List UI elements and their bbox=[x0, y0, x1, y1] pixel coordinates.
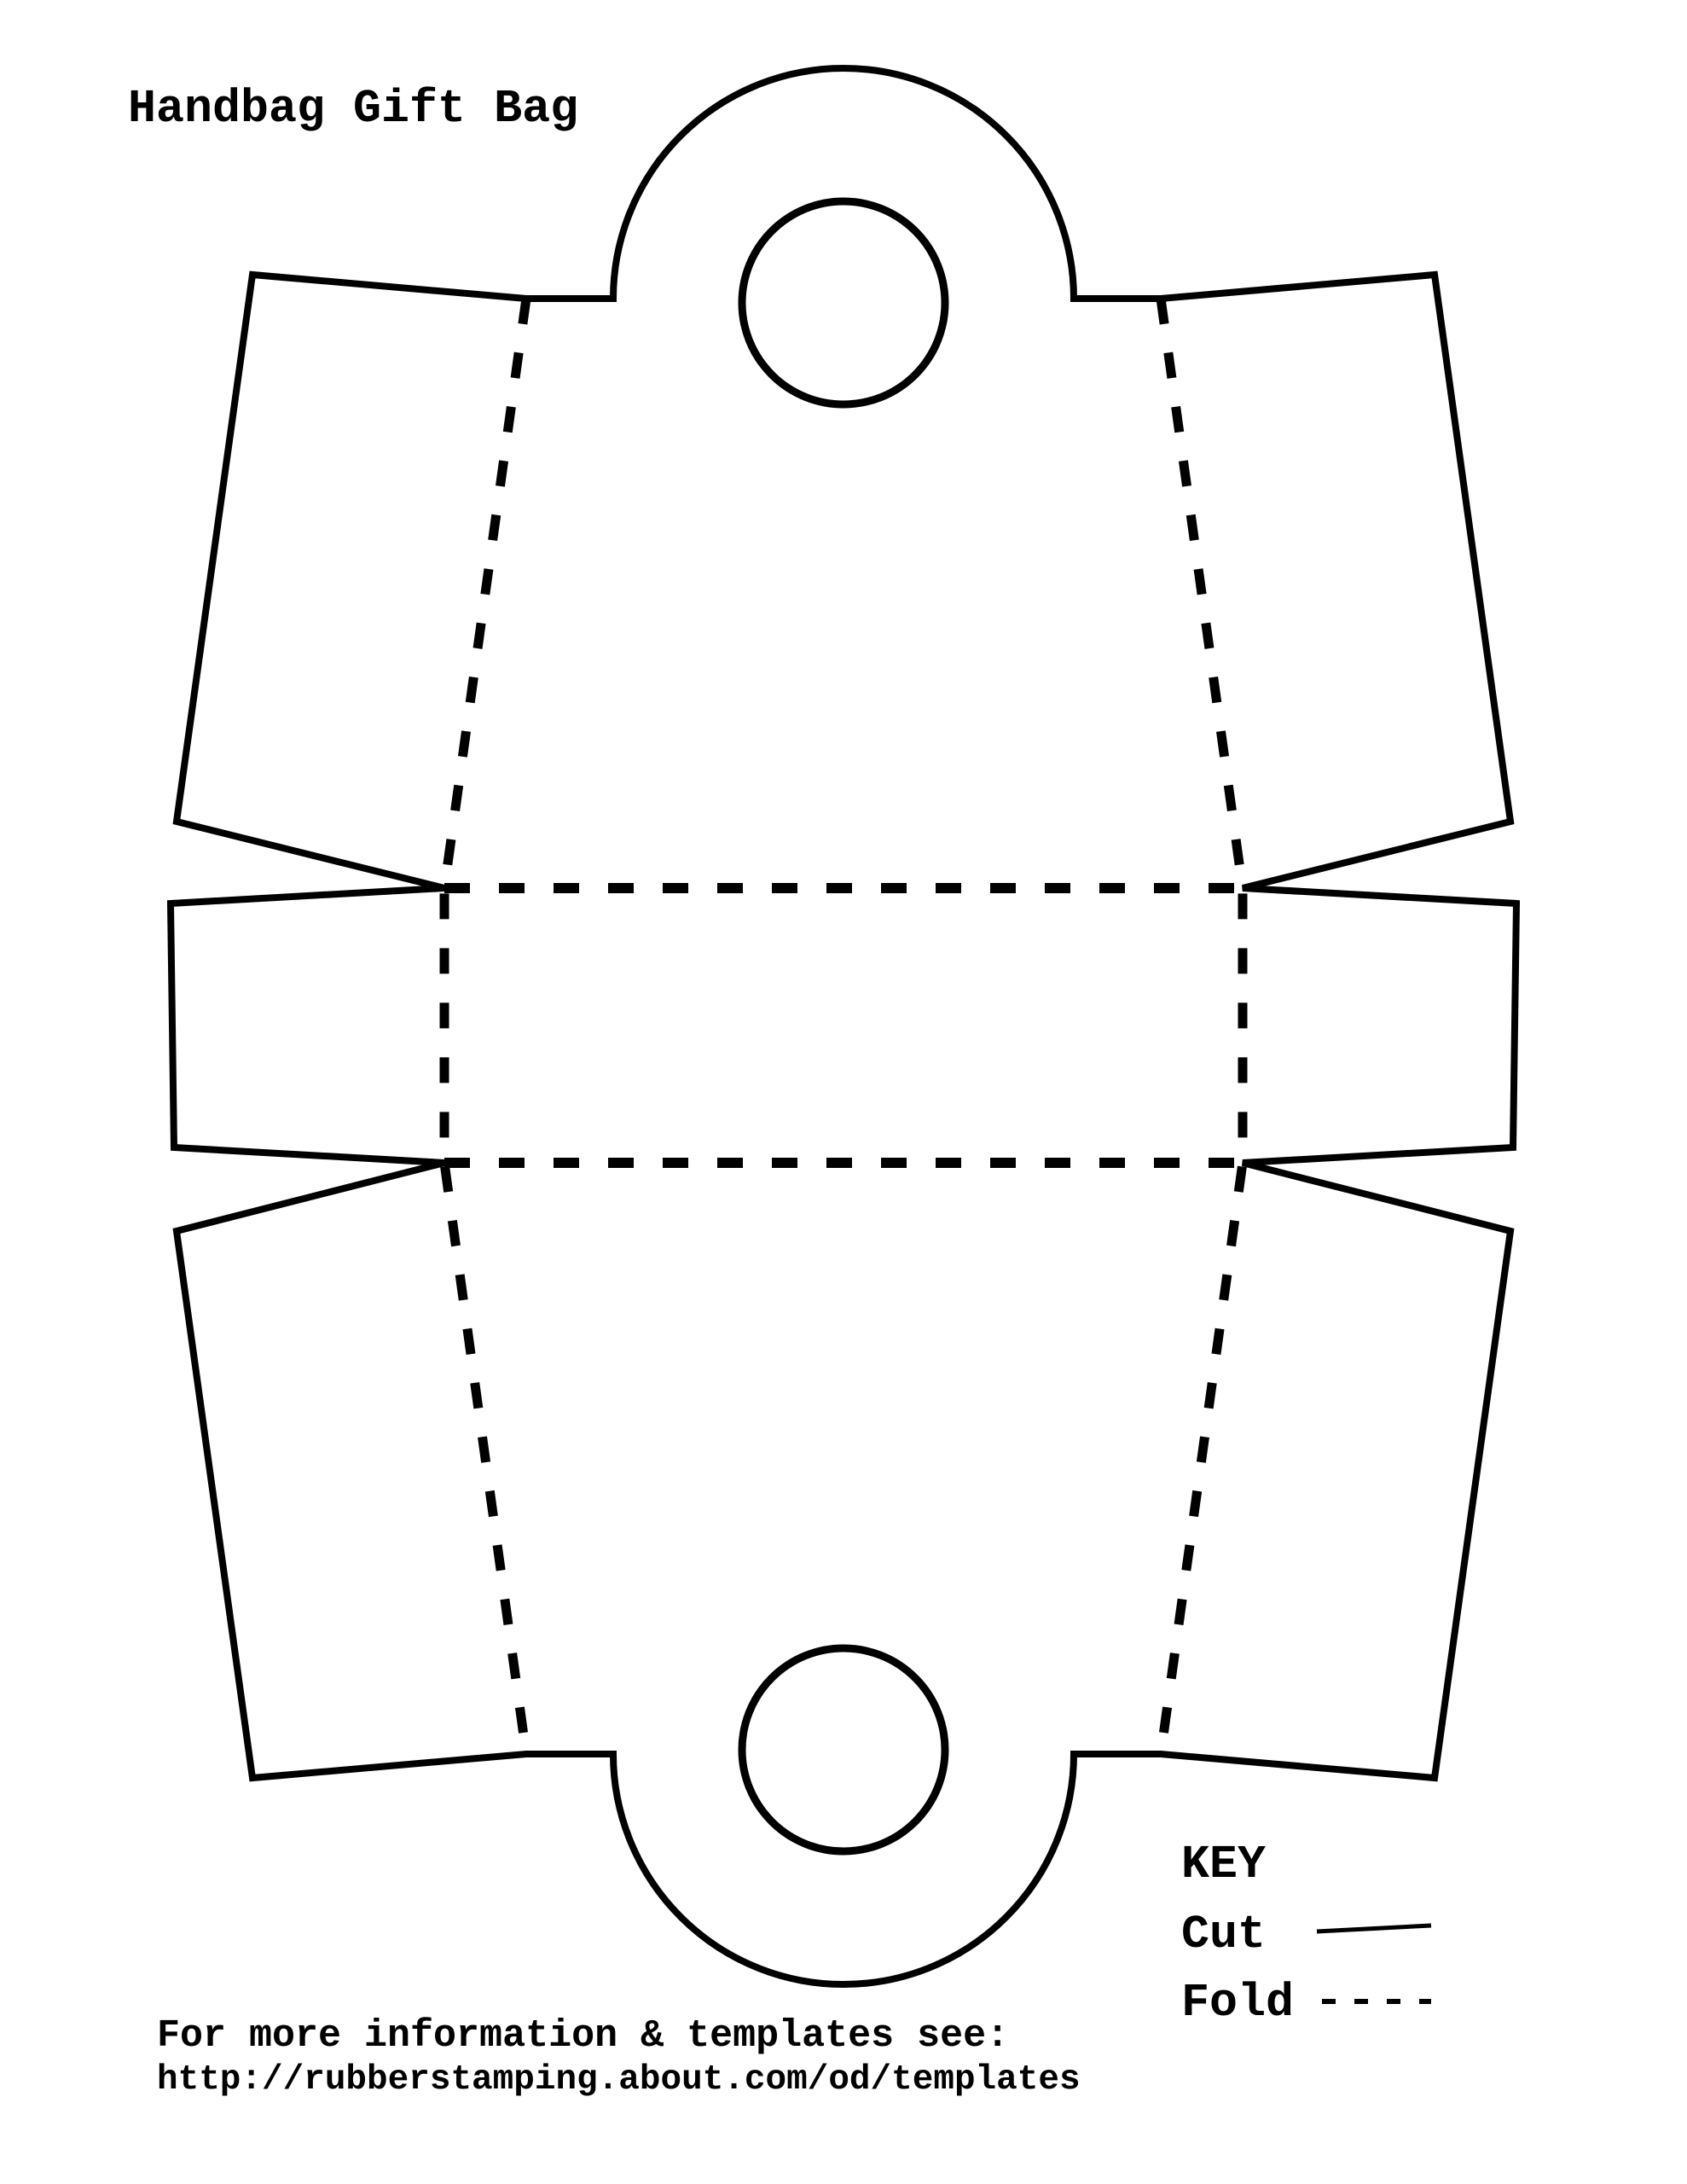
template-drawing bbox=[0, 0, 1687, 2184]
fold-line-right bbox=[1161, 299, 1243, 1754]
top-handle-hole-cut bbox=[742, 201, 945, 404]
legend-heading: KEY bbox=[1181, 1841, 1266, 1888]
cut-line-sample bbox=[1317, 1926, 1431, 1931]
cut-outline-path bbox=[171, 68, 1516, 1984]
fold-line-left bbox=[444, 299, 526, 1754]
footer-line-1: For more information & templates see: bbox=[157, 2017, 1009, 2055]
legend-fold-label: Fold bbox=[1181, 1979, 1294, 2026]
template-page: Handbag Gift Bag KEY Cut Fold For more i… bbox=[0, 0, 1687, 2184]
footer-line-2: http://rubberstamping.about.com/od/templ… bbox=[157, 2063, 1081, 2098]
legend-cut-label: Cut bbox=[1181, 1911, 1266, 1958]
bottom-handle-hole-cut bbox=[742, 1648, 945, 1851]
